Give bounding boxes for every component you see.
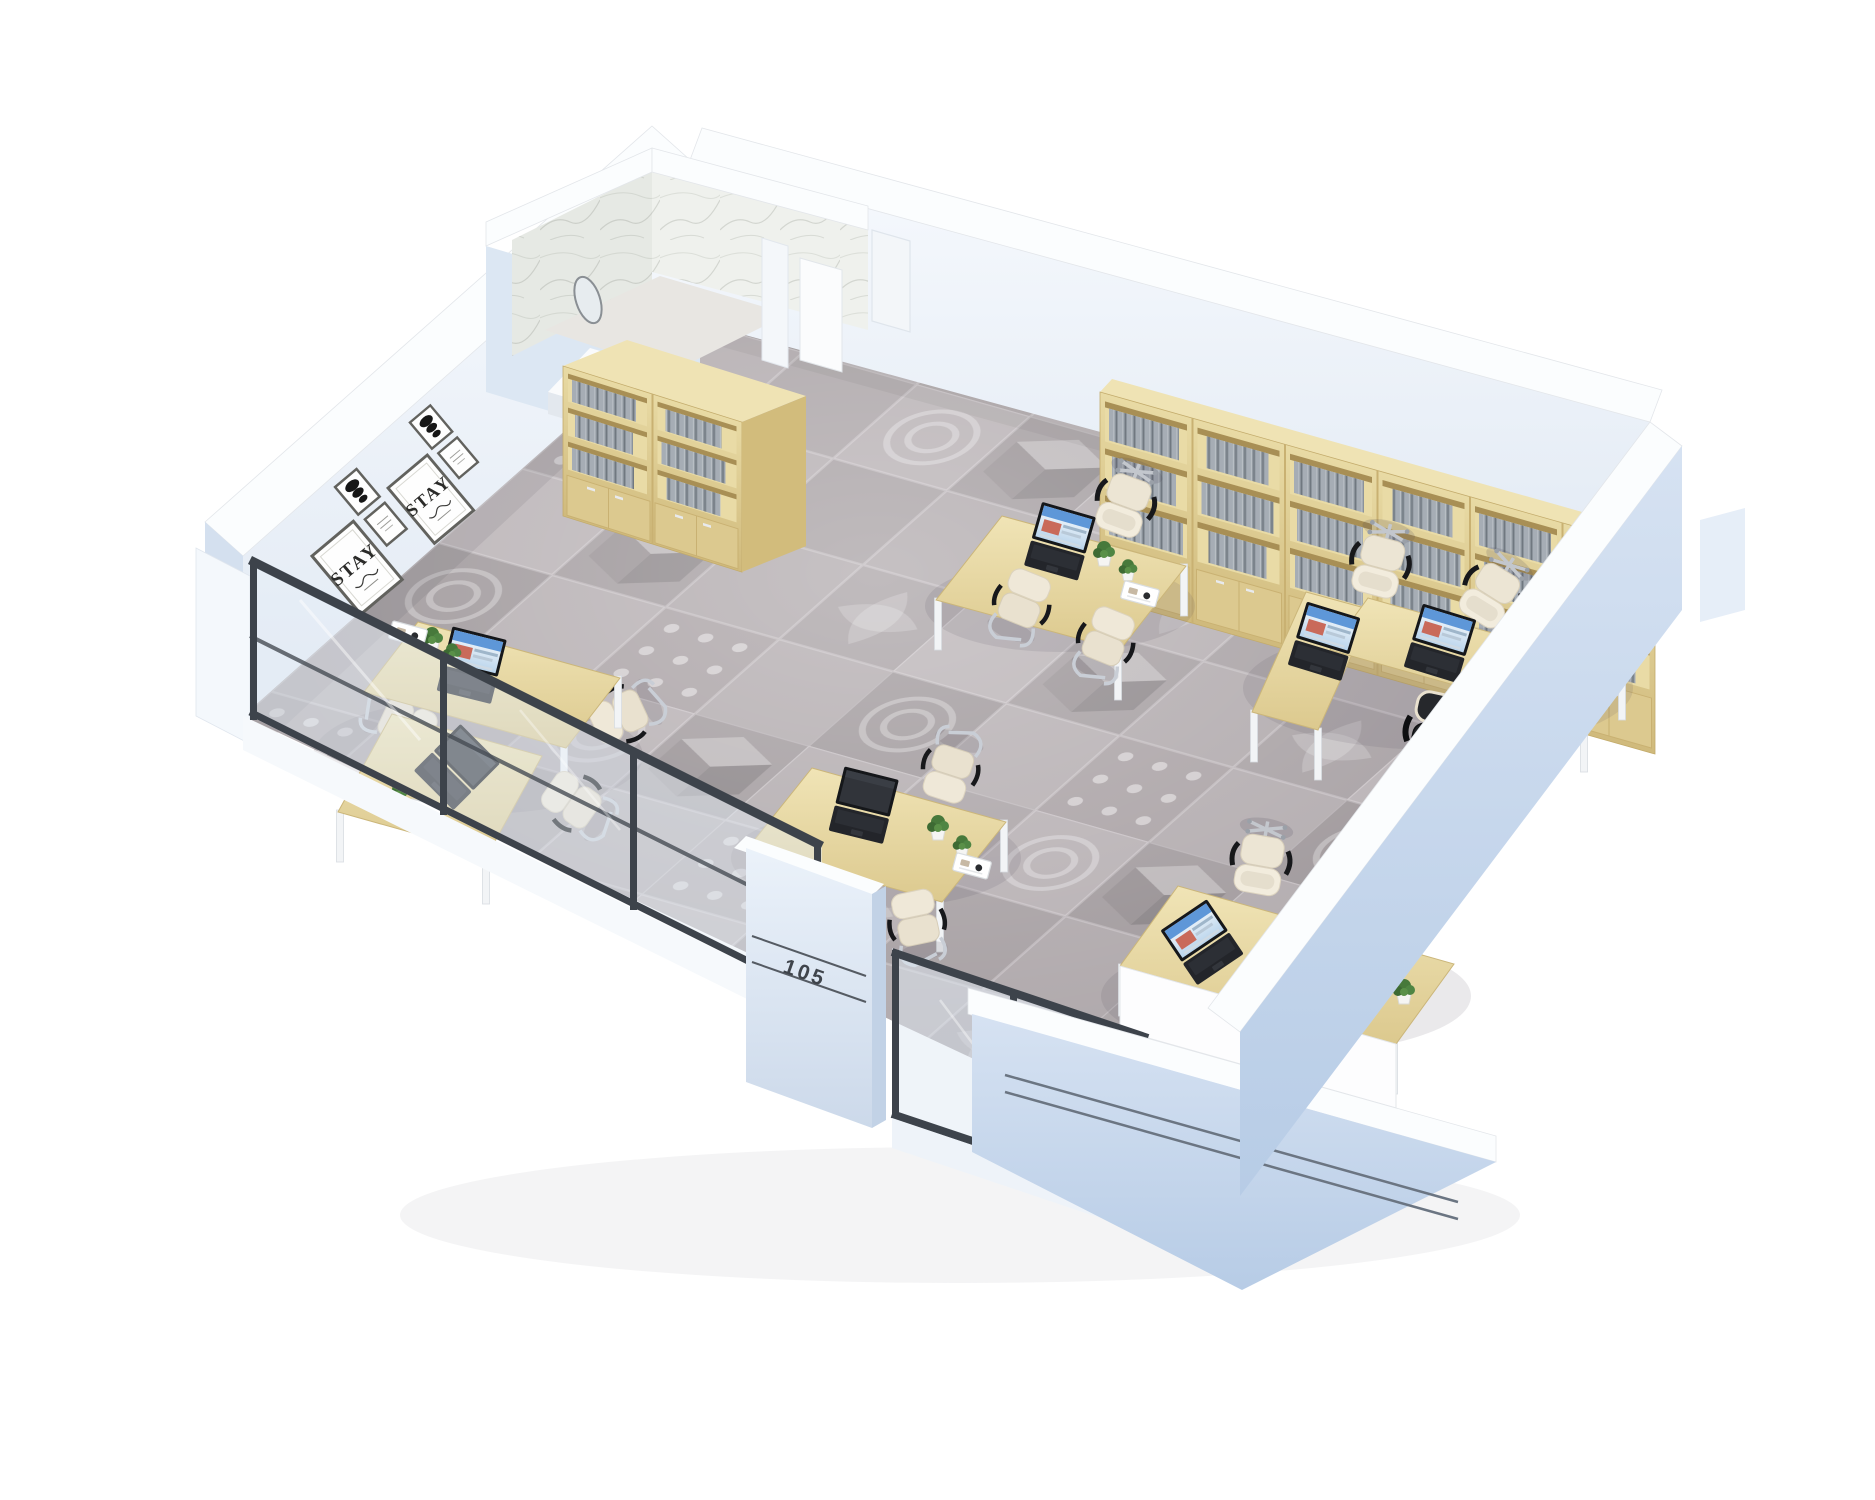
bathroom-door-panel xyxy=(872,230,910,332)
pillar-face xyxy=(746,848,872,1128)
door-pillar-105: 105 xyxy=(734,836,886,1128)
desk-leg xyxy=(935,598,942,650)
pillar-side xyxy=(872,886,886,1128)
bookshelf-small-side xyxy=(742,396,806,572)
bathroom-door xyxy=(800,258,842,372)
desk-leg xyxy=(337,810,344,862)
wall-left-end-cap xyxy=(196,548,250,744)
office-room-render: STAY STAY xyxy=(0,0,1875,1500)
bathroom-partition xyxy=(762,238,788,368)
office-floorplan-stage: STAY STAY xyxy=(0,0,1875,1500)
glass-door-post xyxy=(892,950,899,1116)
desk-leg xyxy=(1251,710,1258,762)
wall-right-recess-panel xyxy=(1700,508,1745,622)
desk-leg xyxy=(1315,728,1322,780)
glass-post xyxy=(250,560,257,720)
glass-post xyxy=(440,655,447,815)
glass-post xyxy=(630,750,637,910)
